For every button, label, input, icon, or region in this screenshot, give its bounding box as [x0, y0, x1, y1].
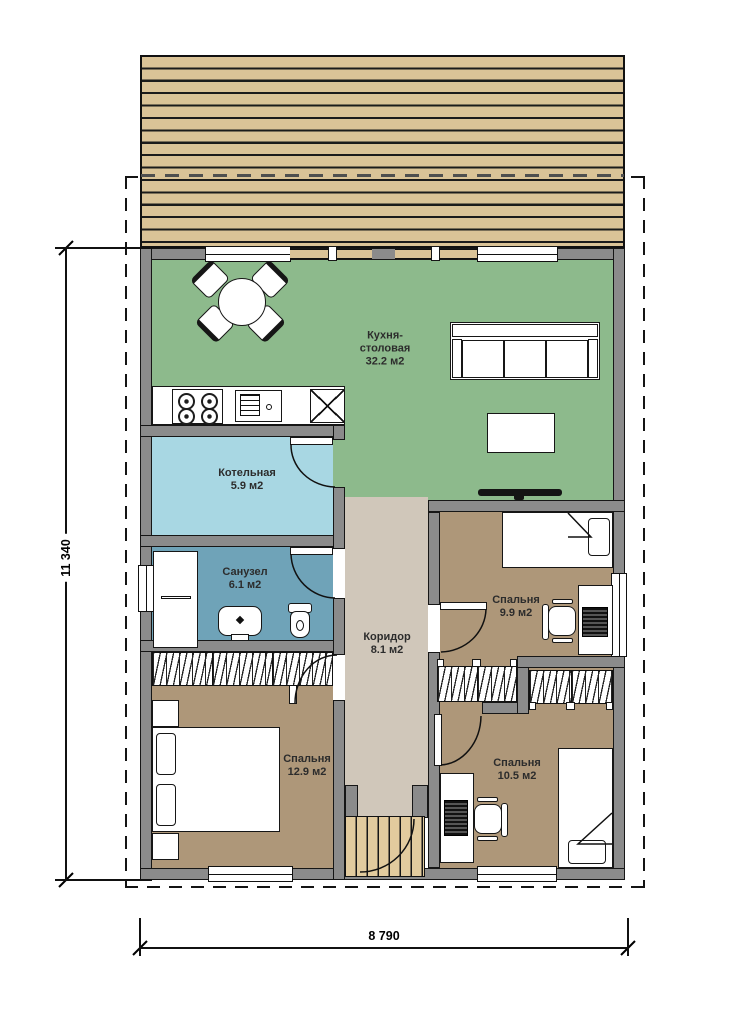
wardrobe-bedroom1	[477, 666, 517, 702]
door-leaf-bedroom1	[440, 602, 487, 610]
sofa-cushion	[462, 340, 504, 378]
pillow-bedroom2	[156, 784, 176, 826]
window-bedroom1-right	[611, 573, 627, 657]
window-glass-line	[209, 874, 292, 875]
computer-bedroom1	[582, 607, 608, 637]
toilet-bowl	[290, 611, 310, 638]
wardrobe-bedroom2	[152, 652, 213, 686]
wall-exterior-right	[613, 248, 625, 880]
wall-corridor-left-b	[333, 487, 345, 549]
window-bedroom2-bottom	[208, 866, 293, 882]
roof-outline-bottom	[125, 886, 645, 888]
coffee-table	[487, 413, 555, 453]
shower	[153, 551, 198, 648]
sofa-armrest	[588, 339, 598, 378]
office-chair-arm	[552, 638, 573, 643]
wall-boiler-bathroom	[140, 535, 345, 547]
dim-text-vertical: 11 340	[59, 534, 73, 582]
sofa-cushion	[546, 340, 588, 378]
room-label-kitchen: Кухня- столовая 32.2 м2	[360, 330, 411, 369]
room-name-line: Коридор	[363, 631, 410, 644]
office-chair-back-bedroom3	[501, 803, 508, 837]
roof-outline-right	[643, 176, 645, 888]
door-leaf-bedroom3	[434, 714, 442, 766]
terrace-door-post-right	[431, 246, 440, 261]
kitchen-corner-cabinet	[310, 389, 345, 423]
office-chair-arm	[477, 797, 498, 802]
room-area: 6.1 м2	[222, 579, 267, 592]
room-name-line: Котельная	[218, 467, 276, 480]
wall-corridor-left-d	[333, 700, 345, 880]
stove-burner	[201, 408, 218, 425]
window-glass-line	[619, 574, 620, 656]
room-label-bathroom: Санузел 6.1 м2	[222, 566, 267, 592]
dim-ext-bottom-left	[55, 879, 152, 881]
tv-stand	[514, 494, 524, 500]
window-bathroom-left	[138, 565, 154, 612]
room-name-line: Спальня	[493, 757, 541, 770]
sink-faucet	[266, 404, 272, 410]
window-kitchen-top-right	[477, 246, 558, 262]
office-chair-bedroom1	[548, 606, 576, 636]
stove-burner	[178, 408, 195, 425]
roof-line-over-deck	[141, 174, 624, 177]
sink-rack	[240, 394, 260, 416]
room-label-bedroom2: Спальня 12.9 м2	[283, 753, 331, 779]
window-glass-line	[206, 254, 290, 255]
wardrobe-bedroom3	[529, 670, 572, 704]
wall-entry-jamb-left	[345, 785, 358, 818]
room-area: 5.9 м2	[218, 480, 276, 493]
wardrobe-bedroom1	[437, 666, 478, 702]
roof-outline-left	[125, 176, 127, 888]
wall-kitchen-bedroom1	[428, 500, 625, 512]
room-area: 10.5 м2	[493, 770, 541, 783]
wardrobe-post	[437, 659, 444, 667]
room-name-line: Кухня-	[360, 330, 411, 343]
room-area: 9.9 м2	[492, 607, 540, 620]
window-kitchen-top-left	[205, 246, 291, 262]
door-leaf-boiler	[290, 437, 333, 445]
room-label-bedroom3: Спальня 10.5 м2	[493, 757, 541, 783]
wardrobe-post	[606, 702, 613, 710]
nightstand	[152, 700, 179, 727]
nightstand	[152, 833, 179, 860]
sofa-back	[452, 324, 598, 337]
window-glass-line	[478, 874, 556, 875]
wardrobe-post	[529, 702, 536, 710]
office-chair-arm	[477, 836, 498, 841]
toilet-seat	[296, 620, 304, 631]
room-name-line: Спальня	[283, 753, 331, 766]
corridor-floor	[345, 497, 428, 818]
shower-drain	[161, 596, 191, 599]
window-glass-line	[146, 566, 147, 611]
wardrobe-post	[472, 659, 481, 667]
dim-ext-top-left	[55, 247, 152, 249]
dim-ext-bottom-l	[139, 918, 141, 956]
room-label-corridor: Коридор 8.1 м2	[363, 631, 410, 657]
dim-ext-bottom-r	[627, 918, 629, 956]
pillow-bedroom2	[156, 733, 176, 775]
sofa-cushion	[504, 340, 546, 378]
room-area: 32.2 м2	[360, 356, 411, 369]
room-area: 8.1 м2	[363, 644, 410, 657]
wall-entry-jamb-right	[412, 785, 428, 818]
dim-text-horizontal: 8 790	[363, 929, 404, 943]
wardrobe-bedroom3	[571, 670, 613, 704]
wall-corridor-left-a	[333, 425, 345, 440]
room-label-boiler: Котельная 5.9 м2	[218, 467, 276, 493]
office-chair-bedroom3	[474, 804, 502, 834]
terrace-door-post-left	[328, 246, 337, 261]
room-name-line: Спальня	[492, 594, 540, 607]
wall-corridor-right-a	[428, 512, 440, 605]
wardrobe-bedroom2	[272, 652, 333, 686]
wall-corridor-left-c	[333, 598, 345, 655]
pillow-bedroom1	[588, 518, 610, 556]
computer-bedroom3	[444, 800, 468, 836]
room-name-line: Санузел	[222, 566, 267, 579]
wardrobe-post	[566, 702, 575, 710]
dining-table	[218, 278, 266, 326]
stove	[172, 389, 223, 424]
kitchen-sink	[235, 390, 282, 422]
wardrobe-post	[510, 659, 517, 667]
wall-exterior-left	[140, 248, 152, 880]
room-area: 12.9 м2	[283, 766, 331, 779]
wardrobe-bedroom2	[212, 652, 273, 686]
wall-kitchen-boiler	[140, 425, 345, 437]
entry-porch-steps	[345, 816, 425, 877]
floor-plan-canvas: Кухня- столовая 32.2 м2 Котельная 5.9 м2…	[0, 0, 744, 1018]
room-label-bedroom1: Спальня 9.9 м2	[492, 594, 540, 620]
wall-bedroom1-bottom-right	[517, 656, 625, 668]
office-chair-arm	[552, 599, 573, 604]
pillow-bedroom3	[568, 840, 606, 864]
washbasin-pedestal	[231, 634, 249, 641]
window-glass-line	[478, 254, 557, 255]
room-name-line: столовая	[360, 343, 411, 356]
window-bedroom3-bottom	[477, 866, 557, 882]
dim-line-horizontal	[140, 947, 628, 949]
sofa-armrest	[452, 339, 462, 378]
door-leaf-bathroom	[290, 547, 333, 555]
deck-terrace	[140, 55, 625, 248]
